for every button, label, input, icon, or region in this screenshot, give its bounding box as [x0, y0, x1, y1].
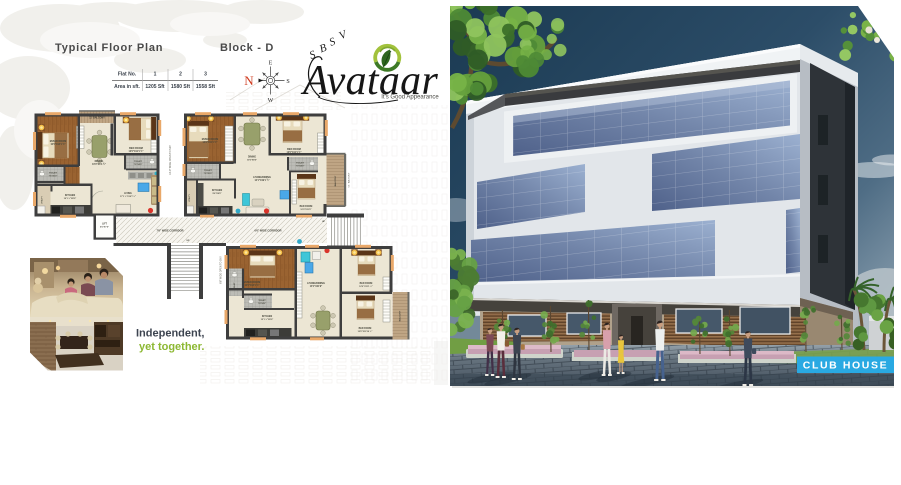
svg-text:1: 1 [154, 72, 157, 78]
svg-text:10'0"X8'0": 10'0"X8'0" [247, 160, 257, 162]
svg-text:UTILITY: UTILITY [42, 196, 44, 204]
svg-text:BED ROOM: BED ROOM [129, 147, 143, 150]
svg-text:1580 Sft: 1580 Sft [171, 84, 191, 90]
svg-text:7'6" WIDE CORRIDOR: 7'6" WIDE CORRIDOR [156, 229, 183, 233]
svg-text:Typical Floor Plan: Typical Floor Plan [55, 42, 163, 54]
svg-text:E: E [269, 61, 273, 67]
svg-text:Flat No.: Flat No. [118, 72, 137, 78]
svg-text:BALCONY: BALCONY [399, 310, 402, 321]
svg-text:BED ROOM: BED ROOM [300, 206, 313, 208]
svg-text:9'6"X8'0": 9'6"X8'0" [213, 193, 222, 195]
svg-text:BED ROOM: BED ROOM [360, 283, 373, 285]
svg-text:10'0"X6'4 ¾": 10'0"X6'4 ¾" [92, 163, 106, 166]
svg-text:7'4"X4'0": 7'4"X4'0" [258, 302, 266, 305]
svg-text:5'1" BALCONY: 5'1" BALCONY [348, 172, 351, 187]
svg-text:M.BED ROOM: M.BED ROOM [202, 138, 219, 141]
svg-text:KITCHEN: KITCHEN [212, 190, 223, 192]
svg-text:1558 Sft: 1558 Sft [196, 84, 216, 90]
svg-text:M.BED ROOM: M.BED ROOM [244, 281, 261, 284]
svg-text:UP: UP [322, 221, 326, 223]
svg-text:N: N [244, 73, 254, 88]
svg-text:yet together.: yet together. [139, 341, 204, 353]
svg-text:6'6" WIDE OPEN TO SKY: 6'6" WIDE OPEN TO SKY [220, 256, 223, 284]
svg-text:6'6" WIDE CORRIDOR: 6'6" WIDE CORRIDOR [254, 229, 281, 233]
svg-text:12'1"X19'1 ¾": 12'1"X19'1 ¾" [254, 179, 269, 182]
svg-text:TOILET: TOILET [258, 300, 266, 302]
svg-text:10'-0" WIDE OPEN TO SKY: 10'-0" WIDE OPEN TO SKY [169, 145, 172, 175]
svg-text:LIVING: LIVING [124, 193, 132, 195]
svg-text:2: 2 [179, 72, 182, 78]
svg-text:S: S [286, 79, 289, 85]
svg-text:TOILET: TOILET [134, 161, 142, 163]
svg-text:TOILET: TOILET [296, 163, 304, 165]
svg-text:KITCHEN: KITCHEN [65, 195, 76, 197]
svg-text:It's Good Appearance: It's Good Appearance [381, 95, 439, 101]
svg-text:BALCONY: BALCONY [334, 175, 337, 186]
svg-text:TOILET: TOILET [49, 173, 57, 175]
svg-text:CLUB HOUSE: CLUB HOUSE [803, 360, 888, 372]
svg-text:LIVING/DINING: LIVING/DINING [253, 176, 271, 179]
svg-text:5'5"X7'5": 5'5"X7'5" [100, 227, 109, 229]
svg-text:10'1"X21'9": 10'1"X21'9" [310, 286, 322, 288]
svg-text:1205 Sft: 1205 Sft [145, 84, 165, 90]
svg-text:W: W [268, 98, 274, 104]
svg-text:12'0"X11'0": 12'0"X11'0" [300, 209, 311, 211]
svg-text:Independent,: Independent, [136, 328, 204, 340]
svg-text:7'0"X4'0": 7'0"X4'0" [296, 165, 305, 168]
svg-text:Area in sft.: Area in sft. [114, 84, 140, 90]
svg-text:KITCHEN: KITCHEN [262, 316, 273, 318]
svg-text:7'6"X5'0": 7'6"X5'0" [49, 176, 58, 178]
svg-text:3: 3 [204, 72, 207, 78]
svg-text:TOILET: TOILET [204, 170, 212, 172]
svg-text:BED ROOM: BED ROOM [359, 328, 372, 330]
svg-text:7'6"X5'0": 7'6"X5'0" [204, 173, 213, 175]
svg-text:DINING: DINING [248, 157, 256, 159]
svg-text:11' BALCONY: 11' BALCONY [89, 117, 105, 120]
svg-text:LIVING/DINING: LIVING/DINING [307, 282, 325, 285]
svg-text:M.BED ROOM: M.BED ROOM [50, 140, 67, 143]
svg-text:UP: UP [186, 240, 190, 242]
svg-text:Block - D: Block - D [220, 42, 274, 54]
svg-text:LIFT: LIFT [102, 224, 107, 226]
svg-text:DINING: DINING [95, 160, 104, 163]
svg-text:BED ROOM: BED ROOM [287, 148, 301, 151]
svg-text:7'6"X4'0": 7'6"X4'0" [134, 163, 143, 166]
svg-text:UTILITY: UTILITY [189, 194, 191, 202]
